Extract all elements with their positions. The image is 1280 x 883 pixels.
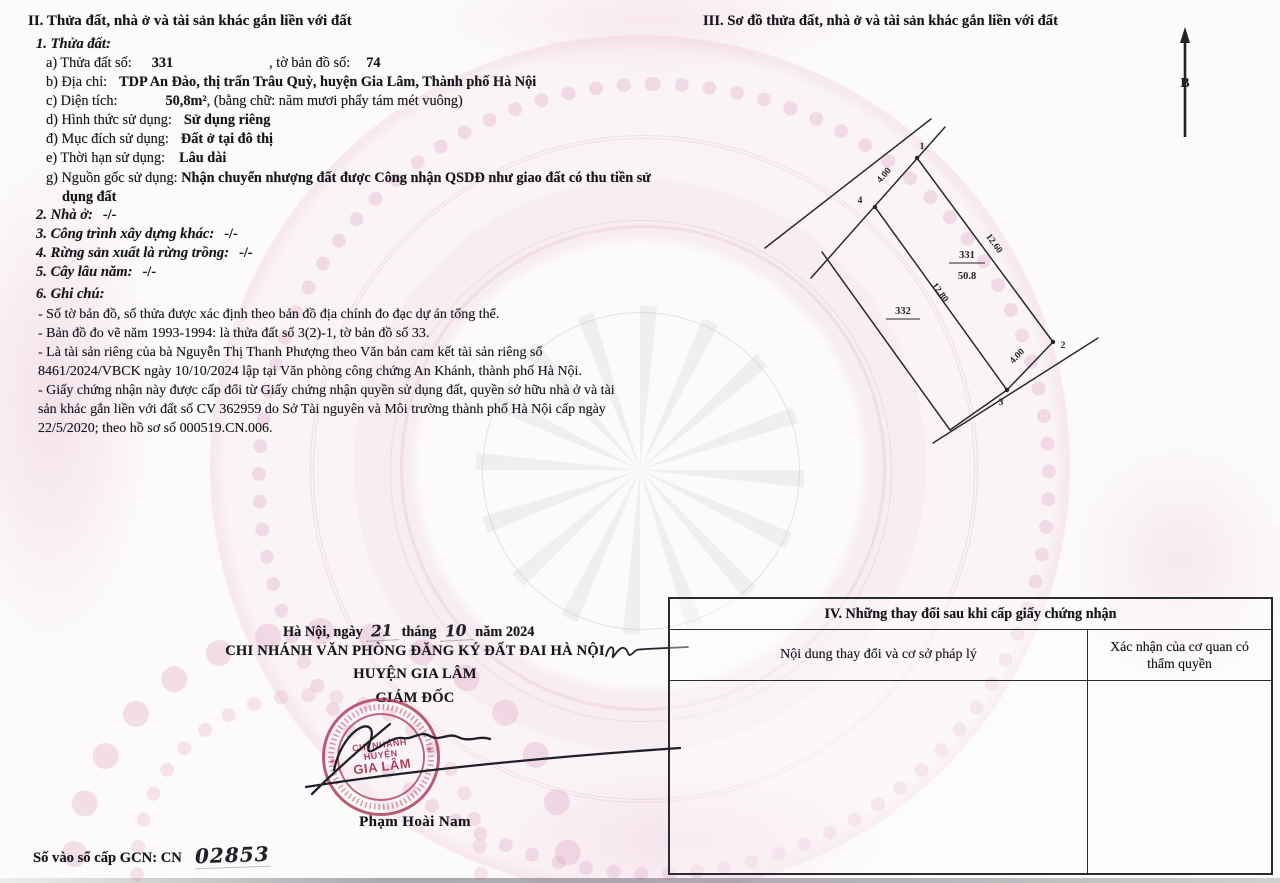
road-edge-top	[765, 119, 931, 248]
block-rear-line	[950, 342, 1053, 430]
date-suffix: năm 2024	[475, 624, 534, 640]
gcn-serial-label: Số vào sổ cấp GCN: CN	[33, 850, 182, 866]
changes-col2-header: Xác nhận của cơ quan có thẩm quyền	[1088, 630, 1271, 680]
parcel-number-label-331: 331	[959, 250, 975, 261]
date-mid: tháng	[402, 624, 437, 640]
block-frontage-line	[811, 127, 945, 278]
parcel-number-value: 331	[152, 55, 173, 71]
edge-top-measurement: 4.00	[875, 166, 894, 185]
changes-col2-cell	[1088, 681, 1271, 873]
scan-edge-strip	[0, 878, 1280, 883]
area-words: , (bằng chữ: năm mươi phẩy tám mét vuông…	[207, 93, 463, 109]
use-purpose-value: Đất ở tại đô thị	[181, 131, 273, 147]
use-origin-label: g) Nguồn gốc sử dụng:	[46, 170, 178, 186]
changes-col1-cell	[670, 681, 1088, 873]
field-use-term: e) Thời hạn sử dụng:Lâu dài	[46, 150, 226, 167]
corner-point-4	[873, 205, 877, 209]
parcel-number-label: a) Thửa đất số:	[46, 55, 132, 71]
field-perennial-trees: 5. Cây lâu năm:-/-	[36, 264, 156, 281]
section2-title: II. Thửa đất, nhà ở và tài sản khác gắn …	[28, 13, 352, 30]
corner-4-label: 4	[858, 196, 863, 206]
date-prefix: Hà Nội, ngày	[283, 624, 363, 640]
perennial-trees-value: -/-	[143, 264, 157, 280]
house-value: -/-	[103, 207, 117, 223]
issue-date-line: Hà Nội, ngày 21 tháng 10 năm 2024	[283, 621, 534, 641]
gcn-serial-line: Số vào sổ cấp GCN: CN 02853	[33, 843, 270, 868]
changes-table-empty-row	[670, 681, 1271, 873]
gcn-serial-value-handwritten: 02853	[195, 842, 270, 870]
other-construction-value: -/-	[224, 226, 238, 242]
map-sheet-value: 74	[366, 55, 380, 71]
field-use-form: d) Hình thức sử dụng:Sử dụng riêng	[46, 112, 270, 129]
parcel-332-left-boundary	[822, 252, 950, 430]
corner-point-2	[1051, 340, 1055, 344]
issuing-office-line1: CHI NHÁNH VĂN PHÒNG ĐĂNG KÝ ĐẤT ĐAI HÀ N…	[155, 643, 675, 660]
production-forest-value: -/-	[239, 245, 253, 261]
date-month-handwritten: 10	[440, 620, 473, 642]
section3-title: III. Sơ đồ thửa đất, nhà ở và tài sản kh…	[703, 13, 1058, 30]
remarks-label: 6. Ghi chú:	[36, 286, 105, 302]
date-day-handwritten: 21	[366, 620, 399, 642]
section2-sub1-title: 1. Thửa đất:	[36, 36, 111, 53]
parcel-sketch: 1 2 3 4 4.00 12.60 12.80 4.00 331 50.8 3…	[745, 95, 1145, 475]
area-value: 50,8m²	[165, 93, 206, 109]
field-remarks-heading: 6. Ghi chú:	[36, 286, 105, 303]
corner-3-label: 3	[999, 398, 1004, 408]
other-construction-label: 3. Công trình xây dựng khác:	[36, 226, 214, 242]
corner-point-3	[1005, 388, 1009, 392]
address-value: TDP An Đào, thị trấn Trâu Quỳ, huyện Gia…	[119, 74, 536, 90]
use-term-value: Lâu dài	[179, 150, 226, 166]
parcel-331-right-edge	[917, 158, 1053, 342]
perennial-trees-label: 5. Cây lâu năm:	[36, 264, 133, 280]
adjacent-parcel-label-332: 332	[895, 306, 911, 317]
remarks-list: - Số tờ bản đồ, số thửa được xác định th…	[38, 305, 630, 438]
signer-name: Phạm Hoài Nam	[155, 814, 675, 831]
certificate-page: II. Thửa đất, nhà ở và tài sản khác gắn …	[0, 0, 1280, 883]
corner-2-label: 2	[1061, 341, 1066, 351]
north-arrow-icon: B	[1163, 25, 1207, 140]
area-label: c) Diện tích:	[46, 93, 117, 109]
remark-line: - Bản đồ đo vẽ năm 1993-1994: là thửa đấ…	[38, 324, 630, 343]
field-other-construction: 3. Công trình xây dựng khác:-/-	[36, 226, 238, 243]
changes-table: IV. Những thay đổi sau khi cấp giấy chứn…	[668, 597, 1273, 875]
signature-ink	[292, 690, 692, 805]
field-house: 2. Nhà ở:-/-	[36, 207, 116, 224]
edge-left-measurement: 12.80	[929, 281, 950, 304]
field-production-forest: 4. Rừng sản xuất là rừng trồng:-/-	[36, 245, 253, 262]
parcel-area-label: 50.8	[958, 271, 976, 282]
issuing-office-line2: HUYỆN GIA LÂM	[155, 666, 675, 683]
field-use-origin: g) Nguồn gốc sử dụng: Nhận chuyển nhượng…	[46, 169, 674, 206]
field-use-purpose: đ) Mục đích sử dụng:Đất ở tại đô thị	[46, 131, 273, 148]
remark-line: - Là tài sản riêng của bà Nguyễn Thị Tha…	[38, 343, 630, 381]
map-sheet-label: , tờ bản đồ số:	[269, 55, 350, 71]
field-parcel-number: a) Thửa đất số:331, tờ bản đồ số:74	[46, 55, 380, 72]
remark-line: - Số tờ bản đồ, số thửa được xác định th…	[38, 305, 630, 324]
field-address: b) Địa chỉ:TDP An Đào, thị trấn Trâu Quỳ…	[46, 74, 536, 91]
production-forest-label: 4. Rừng sản xuất là rừng trồng:	[36, 245, 229, 261]
remark-line: - Giấy chứng nhận này được cấp đổi từ Gi…	[38, 381, 630, 438]
edge-bottom-measurement: 4.00	[1008, 347, 1027, 366]
use-form-label: d) Hình thức sử dụng:	[46, 112, 172, 128]
north-label: B	[1180, 76, 1189, 91]
field-area: c) Diện tích:50,8m², (bằng chữ: năm mươi…	[46, 93, 463, 110]
changes-table-header-row: Nội dung thay đổi và cơ sở pháp lý Xác n…	[670, 630, 1271, 681]
corner-point-1	[915, 156, 919, 160]
house-label: 2. Nhà ở:	[36, 207, 93, 223]
watermark-blob-top	[420, 0, 880, 80]
changes-table-title: IV. Những thay đổi sau khi cấp giấy chứn…	[670, 599, 1271, 630]
address-label: b) Địa chỉ:	[46, 74, 107, 90]
use-term-label: e) Thời hạn sử dụng:	[46, 150, 165, 166]
corner-1-label: 1	[920, 142, 925, 152]
changes-col1-header: Nội dung thay đổi và cơ sở pháp lý	[670, 630, 1088, 680]
use-purpose-label: đ) Mục đích sử dụng:	[46, 131, 169, 147]
use-form-value: Sử dụng riêng	[184, 112, 270, 128]
